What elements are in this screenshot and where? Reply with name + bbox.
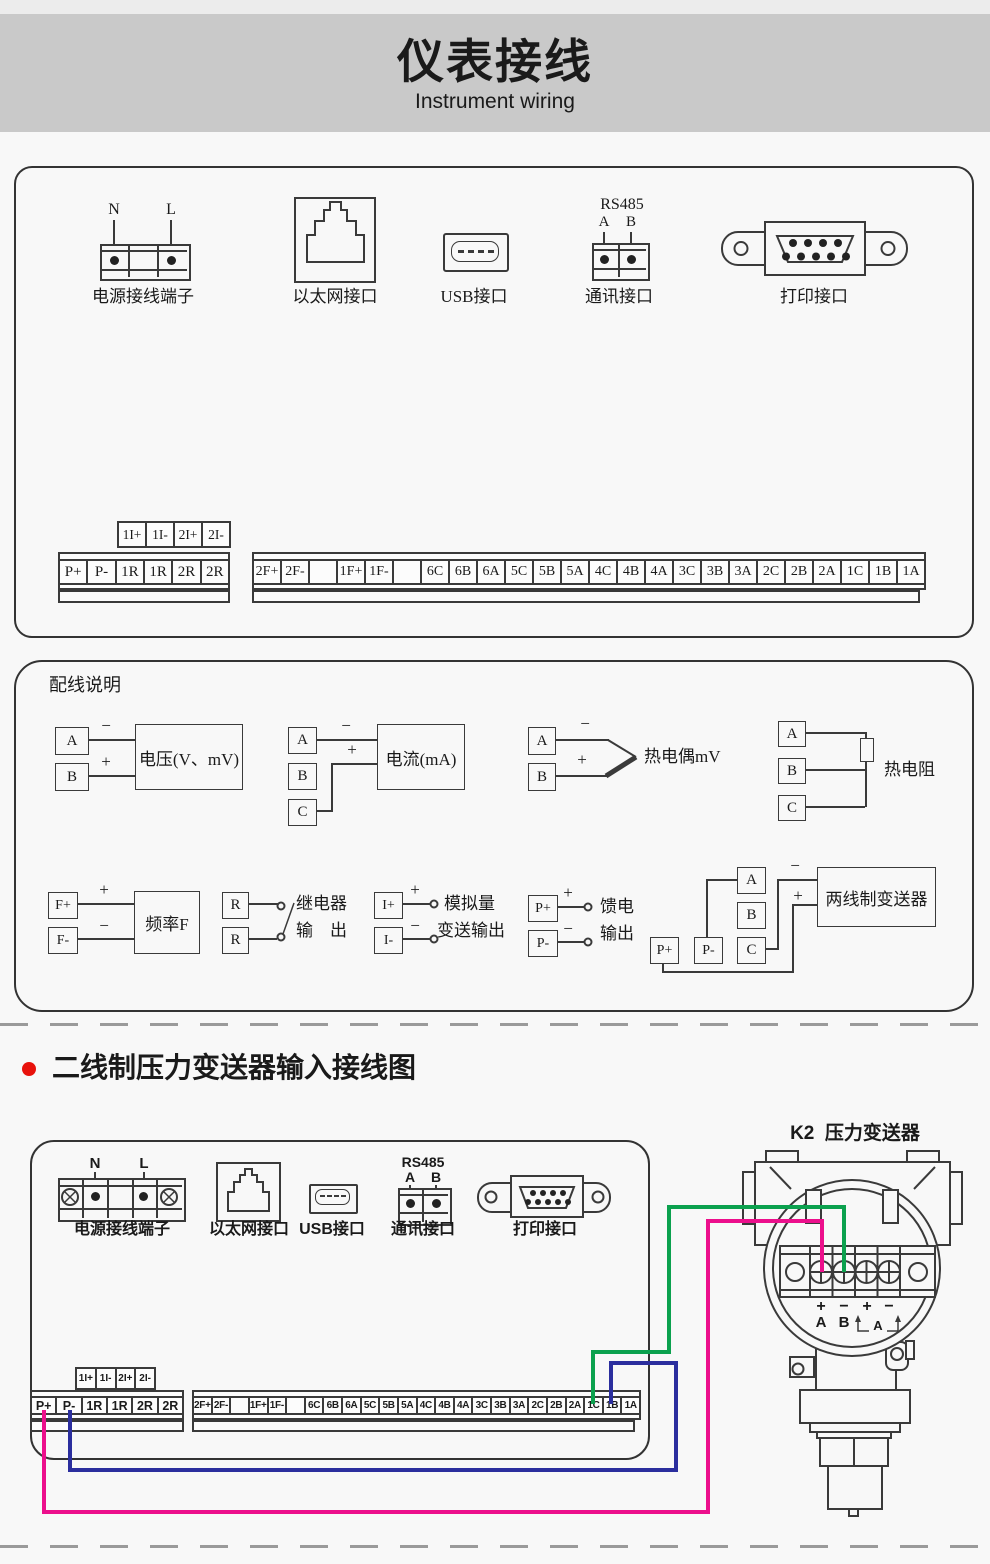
- terminal-cell: 4C: [418, 1398, 437, 1413]
- terminal-cell: [287, 1398, 306, 1413]
- terminal-cell: 2F-: [282, 561, 310, 583]
- resistor-symbol: [860, 738, 874, 762]
- terminal-cell: [231, 1398, 250, 1413]
- sign-minus: −: [558, 921, 578, 937]
- terminal-cell: 1I+: [119, 523, 147, 546]
- terminal-cell: 1I+: [77, 1369, 97, 1388]
- terminal-box: A: [288, 727, 317, 754]
- power-pin-n: N: [86, 1156, 104, 1171]
- terminal-cell: 1R: [117, 561, 145, 583]
- section-title: 二线制压力变送器输入接线图: [52, 1050, 652, 1086]
- terminal-cell: 5A: [399, 1398, 418, 1413]
- rs485-label: RS485: [396, 1155, 450, 1169]
- page-bottom-divider: [0, 1545, 990, 1548]
- analog-label-1: 模拟量: [444, 895, 524, 913]
- terminal-cell: 2A: [567, 1398, 586, 1413]
- comm-pin-a: A: [402, 1170, 418, 1184]
- terminal-cell: 1B: [870, 561, 898, 583]
- terminal-cell: 3A: [730, 561, 758, 583]
- terminal-cell: 5B: [380, 1398, 399, 1413]
- terminal-cell: 2I+: [175, 523, 203, 546]
- terminal-cell: 3C: [674, 561, 702, 583]
- terminal-cell: 1C: [585, 1398, 604, 1413]
- sign-minus: −: [575, 716, 595, 732]
- terminal-cell: 2I+: [117, 1369, 137, 1388]
- comm-pin-b: B: [623, 215, 639, 231]
- terminal-box: I-: [374, 927, 403, 954]
- terminal-cell: 1C: [842, 561, 870, 583]
- sign-plus: +: [788, 888, 808, 904]
- current-box: 电流(mA): [377, 724, 465, 790]
- terminal-cell: 1A: [622, 1398, 639, 1413]
- usb-label: USB接口: [296, 1221, 368, 1239]
- terminal-cell: P+: [32, 1398, 57, 1413]
- rs485-label: RS485: [594, 197, 650, 213]
- terminal-cell: 2R: [173, 561, 201, 583]
- thermocouple-label: 热电偶mV: [644, 747, 764, 767]
- sign-minus: −: [405, 918, 425, 934]
- k2-sign-4: −: [881, 1300, 897, 1314]
- sign-minus: −: [336, 718, 356, 734]
- feed-label-1: 馈电: [600, 898, 650, 916]
- comm-pin-b: B: [428, 1170, 444, 1184]
- terminal-cell: 3B: [492, 1398, 511, 1413]
- terminal-box: P+: [528, 895, 558, 922]
- terminal-cell: 2B: [548, 1398, 567, 1413]
- terminal-box: R: [222, 927, 249, 954]
- terminal-box: A: [55, 727, 89, 755]
- terminal-box: P-: [528, 930, 558, 957]
- terminal-box: F+: [48, 892, 78, 919]
- analog-label-2: 变送输出: [437, 922, 527, 940]
- terminal-cell: 6B: [324, 1398, 343, 1413]
- ethernet-label: 以太网接口: [265, 287, 405, 307]
- terminal-cell: 5B: [534, 561, 562, 583]
- terminal-cell: 3A: [511, 1398, 530, 1413]
- terminal-cell: P-: [57, 1398, 82, 1413]
- header-top-strip: [0, 0, 990, 14]
- terminal-box: B: [55, 763, 89, 791]
- rtd-label: 热电阻: [884, 760, 954, 780]
- terminal-cell: 1A: [898, 561, 924, 583]
- terminal-cell: 4A: [646, 561, 674, 583]
- sign-plus: +: [558, 885, 578, 901]
- terminal-cell: 1I-: [147, 523, 175, 546]
- k2-sign-1: +: [813, 1300, 829, 1314]
- terminal-cell: 2R: [133, 1398, 158, 1413]
- power-pin-l: L: [161, 202, 181, 218]
- k2-bracket-label: A: [871, 1319, 885, 1333]
- k2-transmitter-title: K2 压力变送器: [750, 1124, 960, 1144]
- wiring-diagram-page: 仪表接线 Instrument wiring N L 电源接线端子 以太网接口 …: [0, 0, 990, 1564]
- terminal-cell: 2F-: [213, 1398, 232, 1413]
- two-wire-transmitter-box: 两线制变送器: [817, 867, 936, 927]
- terminal-cell: 6C: [306, 1398, 325, 1413]
- left-strip-base: [58, 590, 230, 603]
- aux-terminal-strip: 1I+1I-2I+2I-: [117, 521, 231, 548]
- terminal-cell: [394, 561, 422, 583]
- sign-minus: −: [94, 918, 114, 934]
- terminal-box: P+: [650, 937, 679, 964]
- frequency-box: 频率F: [134, 891, 200, 954]
- terminal-cell: 3C: [473, 1398, 492, 1413]
- terminal-cell: 1F-: [269, 1398, 288, 1413]
- terminal-cell: [310, 561, 338, 583]
- relay-label-1: 继电器: [296, 895, 366, 913]
- terminal-box: B: [737, 902, 766, 929]
- terminal-box: C: [737, 937, 766, 964]
- k2-sign-2: −: [836, 1300, 852, 1314]
- right-terminal-strip-2: 2F+2F-1F+1F-6C6B6A5C5B5A4C4B4A3C3B3A2C2B…: [192, 1390, 641, 1420]
- terminal-cell: 5C: [506, 561, 534, 583]
- printer-label: 打印接口: [512, 1221, 578, 1239]
- terminal-cell: 2R: [159, 1398, 182, 1413]
- terminal-cell: 4A: [455, 1398, 474, 1413]
- power-pin-l: L: [135, 1156, 153, 1171]
- k2-pin-b: B: [836, 1316, 852, 1330]
- terminal-cell: 1R: [108, 1398, 133, 1413]
- terminal-box: A: [737, 867, 766, 894]
- terminal-cell: 2R: [202, 561, 228, 583]
- terminal-cell: P+: [60, 561, 88, 583]
- sign-plus: +: [94, 882, 114, 898]
- page-subtitle: Instrument wiring: [0, 90, 990, 114]
- voltage-box: 电压(V、mV): [135, 724, 243, 790]
- terminal-cell: 1F-: [366, 561, 394, 583]
- terminal-box: C: [778, 795, 806, 821]
- terminal-cell: 4C: [590, 561, 618, 583]
- terminal-cell: 2I-: [203, 523, 229, 546]
- terminal-box: A: [528, 727, 556, 755]
- terminal-cell: 1F+: [338, 561, 366, 583]
- left-terminal-strip-2: P+P-1R1R2R2R: [30, 1390, 184, 1420]
- terminal-cell: 4B: [436, 1398, 455, 1413]
- terminal-box: A: [778, 721, 806, 747]
- terminal-cell: 2C: [758, 561, 786, 583]
- power-pin-n: N: [104, 202, 124, 218]
- terminal-box: F-: [48, 927, 78, 954]
- terminal-cell: 2C: [529, 1398, 548, 1413]
- terminal-cell: 4B: [618, 561, 646, 583]
- terminal-cell: 1I-: [97, 1369, 117, 1388]
- terminal-box: B: [528, 763, 556, 791]
- k2-pin-a: A: [813, 1316, 829, 1330]
- terminal-cell: 2A: [814, 561, 842, 583]
- terminal-cell: 6B: [450, 561, 478, 583]
- sign-minus: −: [785, 858, 805, 874]
- terminal-cell: 1B: [604, 1398, 623, 1413]
- terminal-cell: 2F+: [194, 1398, 213, 1413]
- right-strip-base-2: [192, 1420, 635, 1432]
- relay-label-2: 输 出: [296, 922, 366, 940]
- terminal-cell: P-: [88, 561, 116, 583]
- wiring-explain-panel: [14, 660, 974, 1012]
- terminal-cell: 2B: [786, 561, 814, 583]
- usb-label: USB接口: [404, 287, 544, 307]
- power-terminal-label: 电源接线端子: [73, 287, 213, 307]
- terminal-box: B: [288, 763, 317, 790]
- sign-plus: +: [342, 742, 362, 758]
- terminal-cell: 5C: [362, 1398, 381, 1413]
- ethernet-label: 以太网接口: [208, 1221, 290, 1239]
- terminal-box: R: [222, 892, 249, 919]
- feed-label-2: 输出: [600, 925, 650, 943]
- terminal-cell: 3B: [702, 561, 730, 583]
- sign-plus: +: [96, 754, 116, 770]
- terminal-cell: 2I-: [136, 1369, 154, 1388]
- terminal-cell: 5A: [562, 561, 590, 583]
- sign-minus: −: [96, 718, 116, 734]
- terminal-box: P-: [694, 937, 723, 964]
- wiring-panel-title: 配线说明: [40, 674, 130, 696]
- sign-plus: +: [405, 882, 425, 898]
- printer-label: 打印接口: [744, 287, 884, 307]
- right-strip-base: [252, 590, 920, 603]
- terminal-cell: 1R: [145, 561, 173, 583]
- section-bullet: [22, 1062, 36, 1076]
- right-terminal-strip: 2F+2F-1F+1F-6C6B6A5C5B5A4C4B4A3C3B3A2C2B…: [252, 552, 926, 590]
- terminal-cell: 1F+: [250, 1398, 269, 1413]
- terminal-cell: 6C: [422, 561, 450, 583]
- terminal-cell: 1R: [83, 1398, 108, 1413]
- comm-pin-a: A: [596, 215, 612, 231]
- k2-sign-3: +: [859, 1300, 875, 1314]
- left-strip-base-2: [30, 1420, 184, 1432]
- comm-label: 通讯接口: [390, 1221, 456, 1239]
- terminal-box: I+: [374, 892, 403, 919]
- terminal-cell: 6A: [478, 561, 506, 583]
- sign-plus: +: [572, 752, 592, 768]
- terminal-cell: 2F+: [254, 561, 282, 583]
- power-terminal-label: 电源接线端子: [52, 1221, 192, 1239]
- terminal-box: C: [288, 799, 317, 826]
- left-terminal-strip: P+P-1R1R2R2R: [58, 552, 230, 590]
- terminal-box: B: [778, 758, 806, 784]
- section-divider: [0, 1023, 990, 1026]
- terminal-cell: 6A: [343, 1398, 362, 1413]
- aux-terminal-strip-2: 1I+1I-2I+2I-: [75, 1367, 156, 1390]
- page-title: 仪表接线: [0, 34, 990, 90]
- comm-label: 通讯接口: [549, 287, 689, 307]
